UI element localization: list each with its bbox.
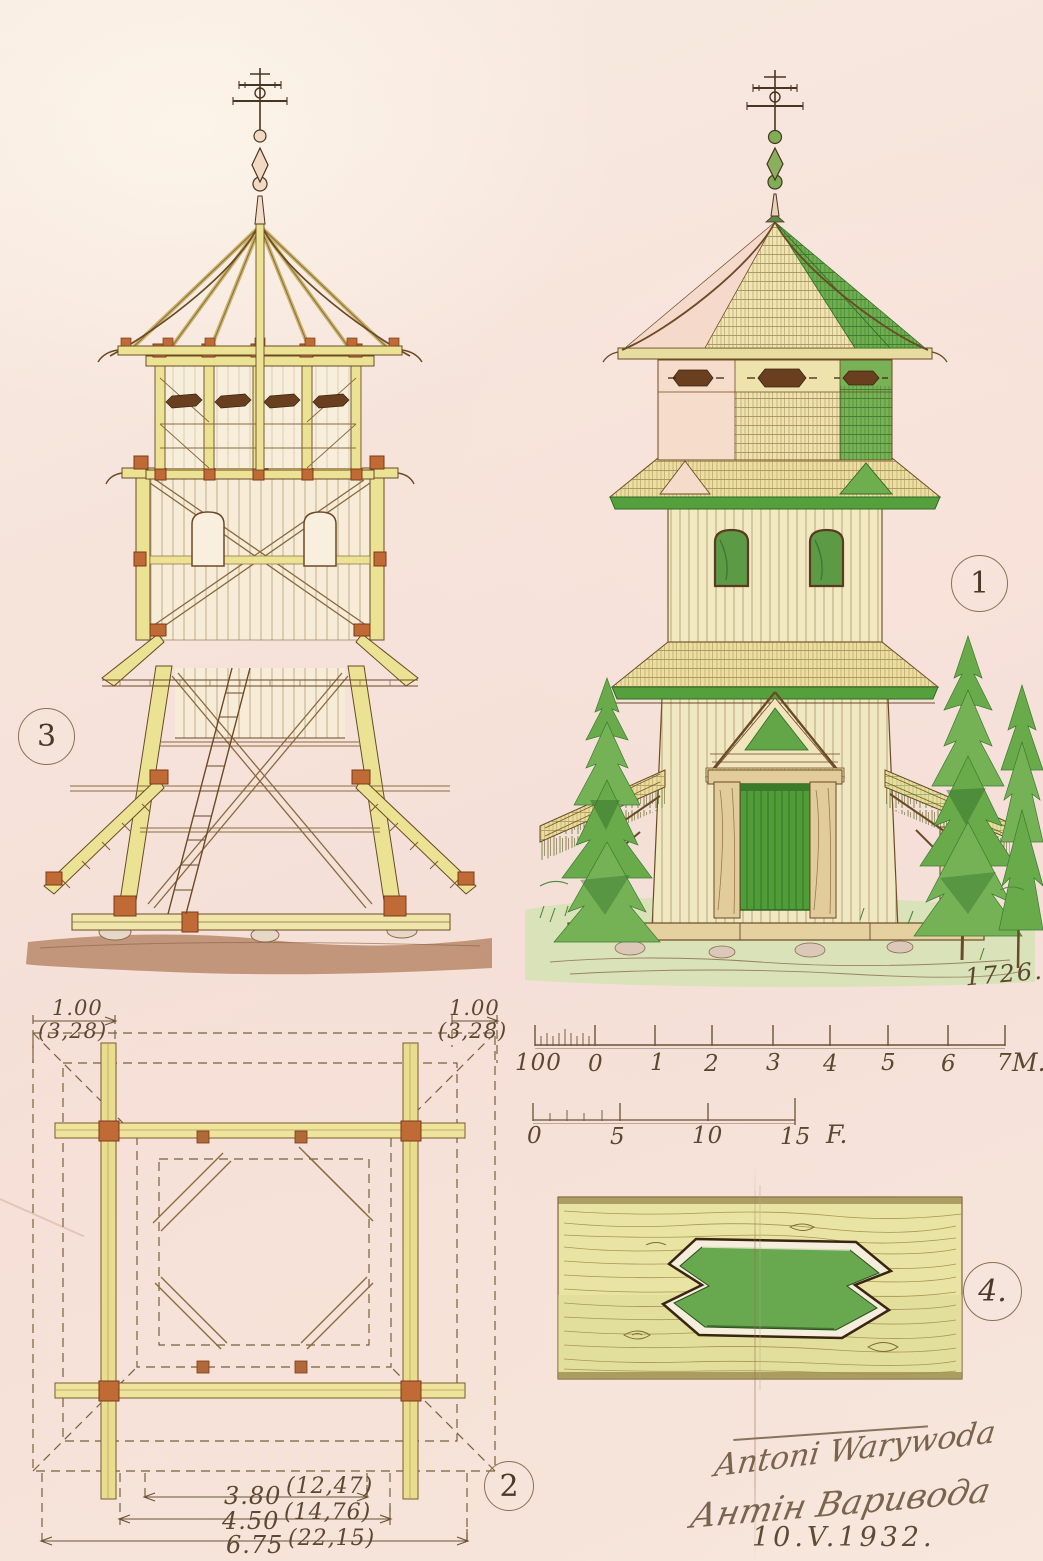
- meter-tick-label: 0: [588, 1053, 604, 1076]
- feet-tick-label: 0: [527, 1125, 543, 1148]
- plan-drawing: [5, 985, 515, 1561]
- paper-crease-vertical: [754, 1165, 756, 1561]
- drawing-plate: 100 0 1 2 3 4 5 6 7 M. 0 5 10 15 F.: [0, 0, 1043, 1561]
- meter-tick-label: 100: [515, 1052, 562, 1075]
- elevation-finial-cross: [747, 70, 803, 222]
- plan-beams: [55, 1043, 465, 1499]
- elevation-belfry: [658, 360, 892, 460]
- plan-dim-top-right-m: 1.00: [449, 998, 500, 1019]
- plan-joints: [99, 1121, 421, 1401]
- figure-number-plan: 2: [484, 1461, 534, 1511]
- section-finial-cross: [233, 68, 287, 224]
- elevation-middle-stage: [668, 508, 882, 642]
- feet-tick-label: 10: [692, 1125, 723, 1148]
- feet-unit-label: F.: [826, 1122, 847, 1147]
- meter-tick-label: 4: [823, 1053, 839, 1076]
- elevation-drawing: [510, 30, 1043, 990]
- plan-dim-row2-ft: (14,76): [284, 1502, 371, 1524]
- belfry-louver: [673, 369, 879, 387]
- figure-number-text: 3: [37, 719, 56, 754]
- plan-dim-top-right-ft: (3,28): [438, 1021, 507, 1042]
- meter-tick-label: 6: [941, 1053, 957, 1076]
- plan-corner-braces: [153, 1147, 373, 1349]
- feet-tick-label: 15: [780, 1126, 811, 1149]
- meter-tick-label: 2: [704, 1053, 720, 1076]
- year-label: 1726.: [964, 959, 1043, 990]
- meter-tick-label: 5: [881, 1052, 897, 1075]
- section-spire: [98, 222, 422, 470]
- figure-number-joint-detail: 4.: [963, 1262, 1022, 1321]
- plan-dim-row1-m: 3.80: [224, 1484, 281, 1508]
- meter-tick-label: 7: [997, 1052, 1013, 1075]
- section-drawing: [10, 28, 510, 978]
- plan-dim-top-left-ft: (3,28): [38, 1021, 107, 1042]
- elevation-spire: [603, 222, 947, 362]
- figure-number-section: 3: [18, 708, 75, 765]
- plan-dim-row1-ft: (12,47): [286, 1476, 373, 1498]
- figure-number-elevation: 1: [951, 555, 1008, 612]
- plan-dim-row3-ft: (22,15): [288, 1528, 375, 1550]
- plan-dim-row3-m: 6.75: [226, 1533, 283, 1557]
- section-middle-stage: [102, 456, 418, 686]
- feet-tick-label: 5: [610, 1126, 626, 1149]
- figure-number-text: 2: [499, 1469, 518, 1504]
- meter-tick-label: 3: [766, 1052, 782, 1075]
- joint-notch: [663, 1239, 891, 1338]
- plan-dim-top-left-m: 1.00: [52, 998, 103, 1019]
- meter-unit-label: M.: [1012, 1050, 1043, 1075]
- joint-detail-drawing: [550, 1185, 970, 1390]
- elevation-belfry-skirt-roof: [610, 458, 940, 509]
- section-ground: [26, 924, 492, 974]
- section-lower-stage: [44, 666, 476, 916]
- date-label: 10.V.1932.: [752, 1524, 936, 1551]
- feet-scale-bar: [510, 1098, 870, 1153]
- figure-number-text: 4.: [978, 1274, 1007, 1309]
- meter-tick-label: 1: [650, 1052, 666, 1075]
- plan-dim-row2-m: 4.50: [222, 1509, 279, 1533]
- figure-number-text: 1: [970, 566, 989, 601]
